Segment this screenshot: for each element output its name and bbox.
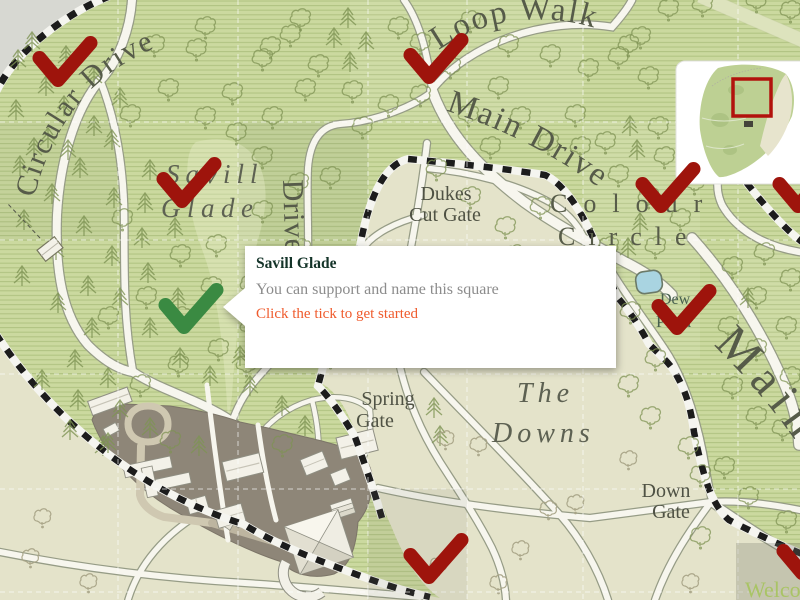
svg-text:Cut Gate: Cut Gate (409, 204, 481, 226)
svg-text:You can support and name this: You can support and name this square (256, 281, 499, 298)
svg-text:Gate: Gate (356, 410, 394, 432)
svg-text:Colour: Colour (550, 189, 718, 218)
svg-text:Drive: Drive (276, 179, 312, 253)
svg-text:Welcome: Welcome (745, 577, 800, 600)
svg-text:Dukes: Dukes (420, 183, 471, 205)
svg-text:Spring: Spring (361, 388, 414, 410)
svg-text:Downs: Downs (491, 418, 595, 449)
svg-text:Savill Glade: Savill Glade (256, 255, 337, 272)
svg-text:Down: Down (642, 480, 691, 502)
svg-text:Gate: Gate (652, 501, 690, 523)
svg-text:The: The (517, 378, 574, 409)
svg-text:Click the tick to get started: Click the tick to get started (256, 306, 419, 322)
